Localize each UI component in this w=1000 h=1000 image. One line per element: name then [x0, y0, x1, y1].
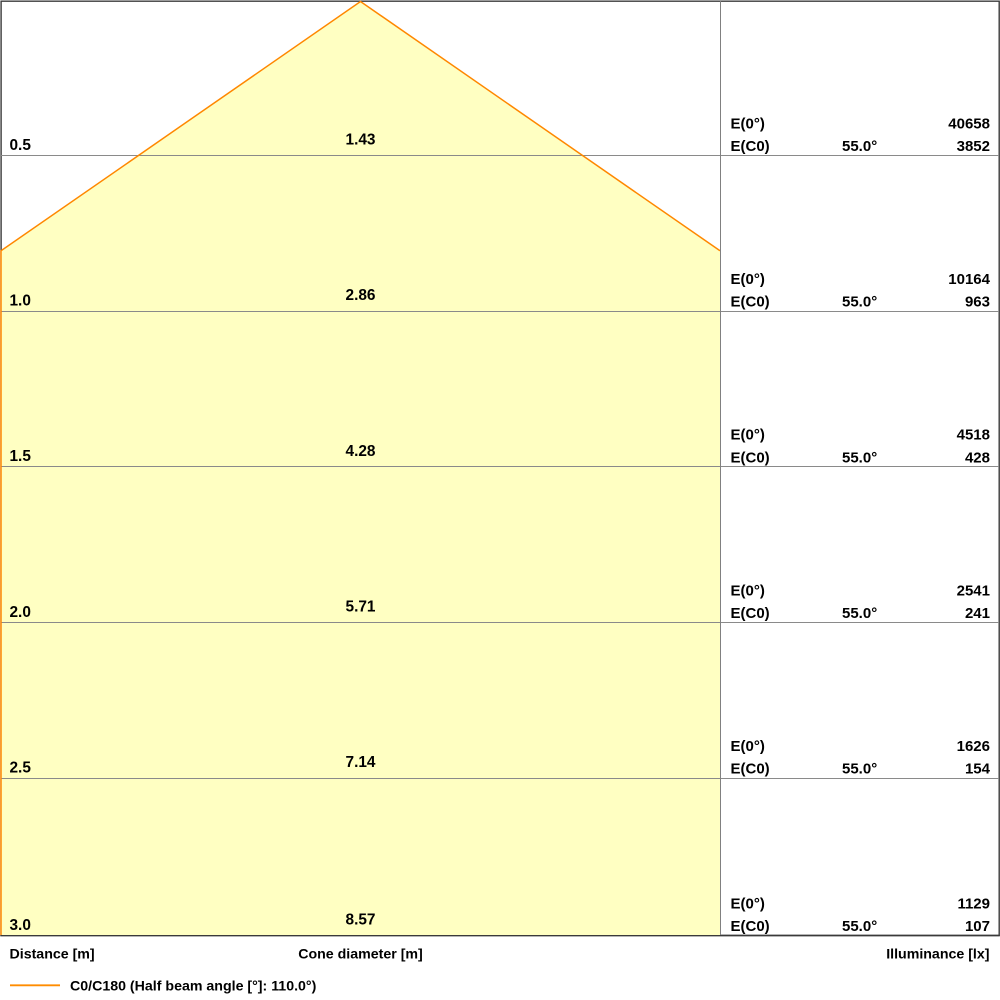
- svg-text:E(C0): E(C0): [731, 918, 770, 935]
- svg-text:55.0°: 55.0°: [842, 918, 877, 935]
- svg-text:963: 963: [965, 294, 990, 311]
- svg-text:0.5: 0.5: [10, 137, 32, 154]
- svg-text:1129: 1129: [957, 895, 990, 912]
- svg-text:2.5: 2.5: [10, 760, 32, 777]
- svg-text:55.0°: 55.0°: [842, 449, 877, 466]
- svg-text:55.0°: 55.0°: [842, 294, 877, 311]
- svg-text:E(0°): E(0°): [731, 582, 765, 599]
- svg-text:E(0°): E(0°): [731, 115, 765, 132]
- svg-text:428: 428: [965, 449, 990, 466]
- svg-text:Cone diameter [m]: Cone diameter [m]: [298, 946, 423, 962]
- svg-text:2541: 2541: [957, 582, 990, 599]
- svg-text:E(0°): E(0°): [731, 895, 765, 912]
- svg-text:241: 241: [965, 605, 990, 622]
- svg-text:1.5: 1.5: [10, 448, 32, 465]
- svg-text:E(0°): E(0°): [731, 271, 765, 288]
- svg-text:7.14: 7.14: [346, 754, 376, 771]
- svg-text:4.28: 4.28: [346, 443, 376, 460]
- svg-text:5.71: 5.71: [346, 599, 376, 616]
- svg-text:E(C0): E(C0): [731, 761, 770, 778]
- svg-text:1.0: 1.0: [10, 293, 31, 310]
- svg-text:55.0°: 55.0°: [842, 761, 877, 778]
- svg-text:3852: 3852: [957, 138, 990, 155]
- svg-text:E(C0): E(C0): [731, 605, 770, 622]
- svg-text:E(C0): E(C0): [731, 138, 770, 155]
- svg-text:8.57: 8.57: [346, 912, 376, 929]
- svg-text:40658: 40658: [948, 115, 990, 132]
- svg-text:154: 154: [965, 761, 991, 778]
- svg-text:E(0°): E(0°): [731, 427, 765, 444]
- svg-text:55.0°: 55.0°: [842, 138, 877, 155]
- svg-text:55.0°: 55.0°: [842, 605, 877, 622]
- svg-text:2.0: 2.0: [10, 604, 31, 621]
- svg-text:E(C0): E(C0): [731, 449, 770, 466]
- svg-text:3.0: 3.0: [10, 917, 31, 934]
- svg-text:4518: 4518: [957, 427, 990, 444]
- svg-text:E(0°): E(0°): [731, 738, 765, 755]
- svg-text:2.86: 2.86: [346, 287, 376, 304]
- svg-text:1626: 1626: [957, 738, 990, 755]
- svg-text:107: 107: [965, 918, 990, 935]
- svg-text:10164: 10164: [948, 271, 990, 288]
- svg-text:Distance [m]: Distance [m]: [10, 946, 95, 962]
- svg-text:1.43: 1.43: [346, 132, 376, 149]
- svg-text:E(C0): E(C0): [731, 294, 770, 311]
- svg-text:Illuminance [lx]: Illuminance [lx]: [886, 946, 989, 962]
- svg-text:C0/C180 (Half beam angle [°]:: C0/C180 (Half beam angle [°]: 110.0°): [70, 978, 317, 994]
